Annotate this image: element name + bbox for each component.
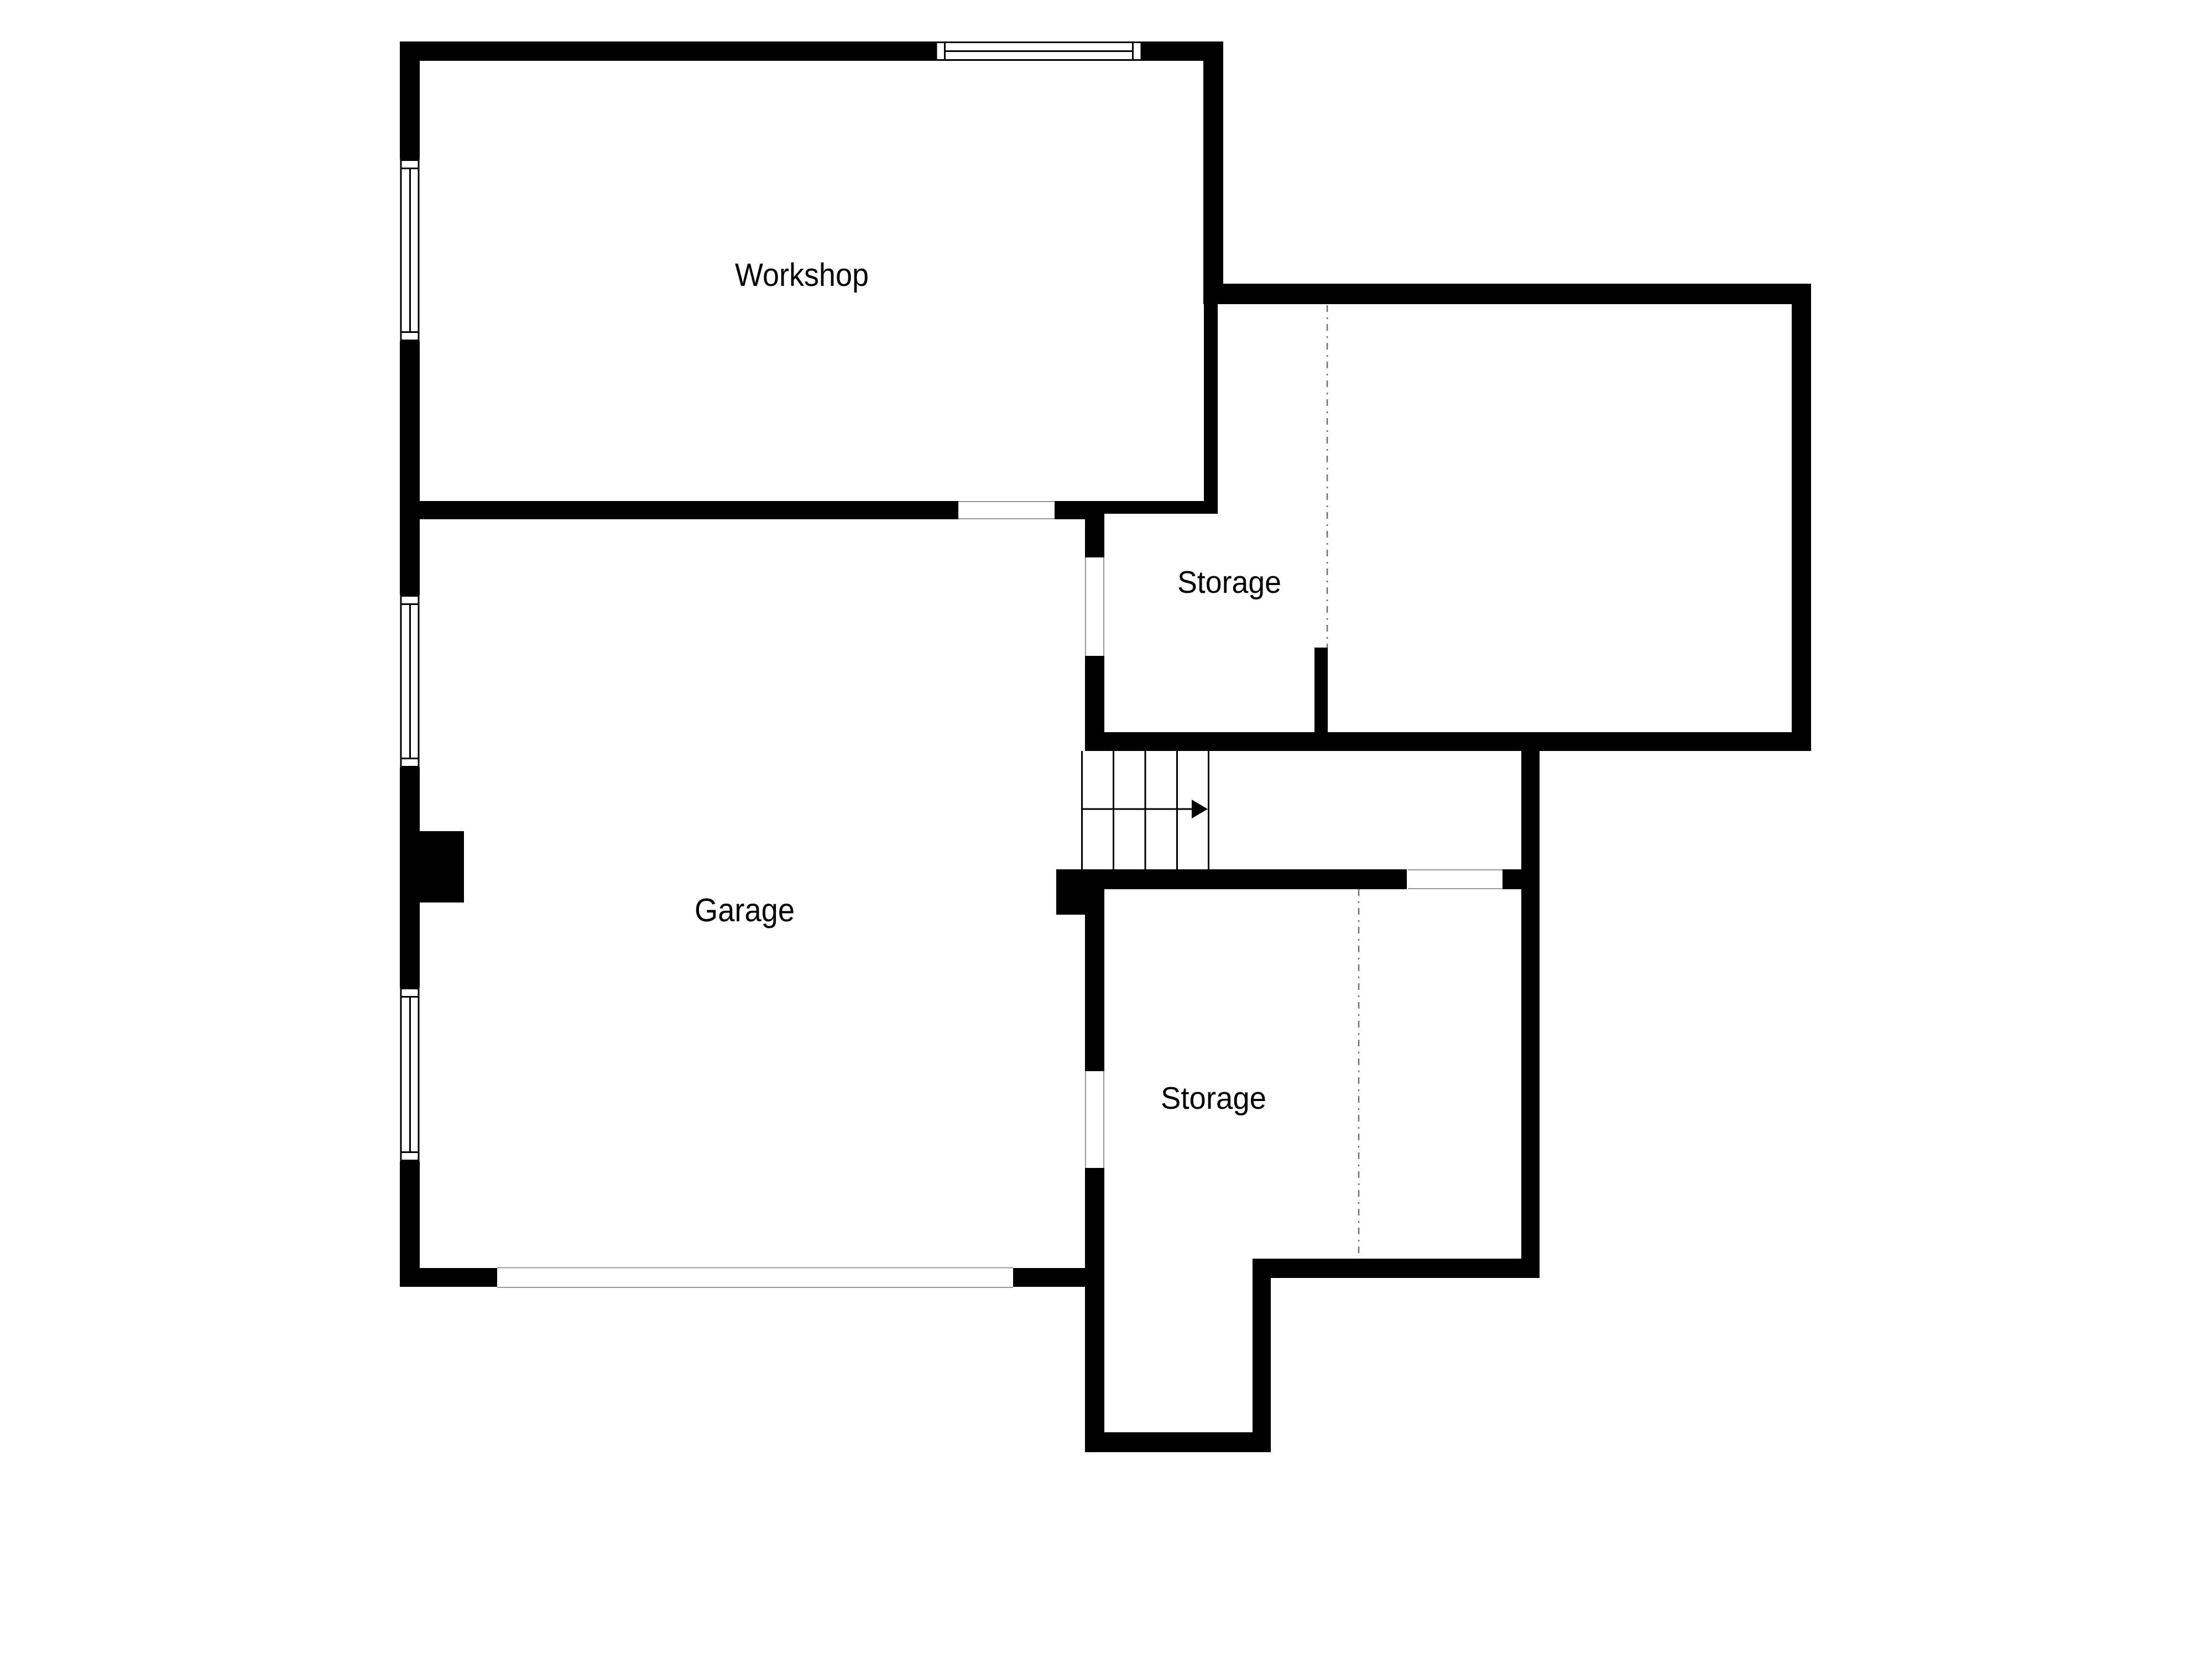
svg-text:Garage: Garage (695, 892, 795, 928)
svg-text:Storage: Storage (1161, 1081, 1266, 1116)
svg-text:Storage: Storage (1177, 565, 1281, 600)
svg-text:Workshop: Workshop (735, 257, 869, 293)
